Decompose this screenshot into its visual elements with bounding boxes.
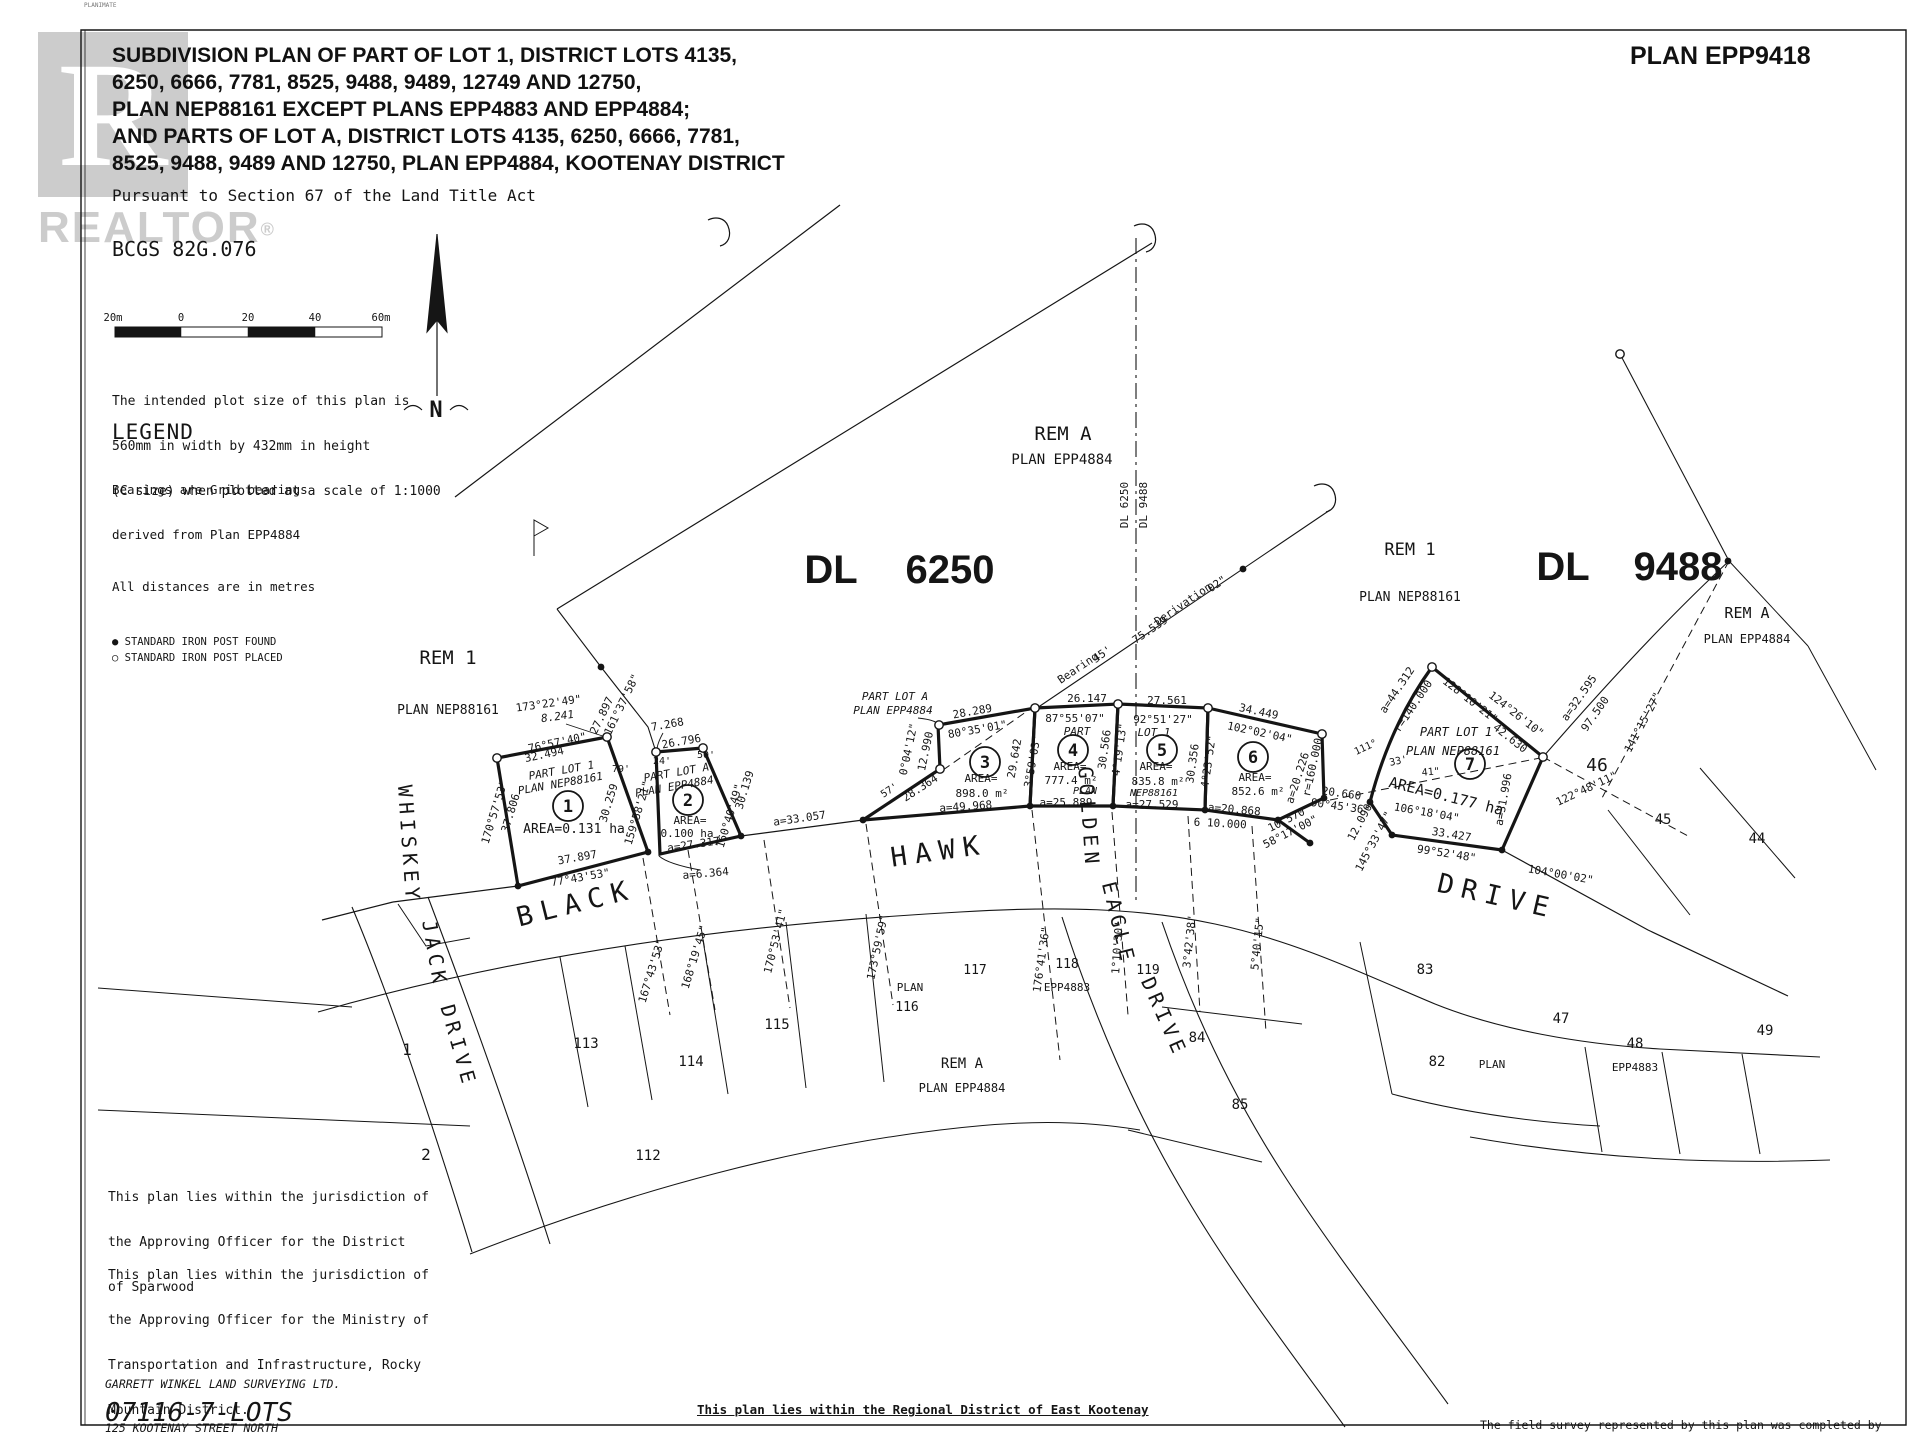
plan-label: PLAN EPP4884 [1704, 632, 1791, 646]
plan-label: 60m [372, 312, 391, 324]
plan-line [1162, 1007, 1302, 1024]
iron-post-found-marker [1499, 847, 1506, 854]
iron-post-found-marker [645, 849, 652, 856]
plan-label: 45 [1655, 812, 1672, 828]
field-survey-line: The field survey represented by this pla… [1480, 1418, 1882, 1432]
plan-label: 46 [1586, 755, 1608, 776]
plan-line [1360, 942, 1392, 1094]
plan-label: Derivation [1152, 580, 1214, 628]
plan-label: PLAN EPP4884 [1011, 452, 1112, 468]
legend-line-1: Bearings are Grid bearings [112, 482, 315, 497]
plan-label: a=27.529 [1126, 798, 1179, 811]
plan-label: 44 [1749, 831, 1766, 847]
plan-label: REM 1 [1384, 540, 1435, 560]
iron-post-placed-marker [652, 748, 660, 756]
plan-label: PLAN NEP88161 [1359, 590, 1461, 605]
plan-line [1585, 1047, 1602, 1152]
iron-post-placed-marker [936, 765, 944, 773]
jurisdiction2-line: This plan lies within the jurisdiction o… [108, 1268, 429, 1283]
iron-post-found-marker [1027, 803, 1034, 810]
plan-label: 83 [1417, 962, 1434, 978]
regional-district-note: This plan lies within the Regional Distr… [697, 1402, 1149, 1417]
plan-label: 37.897 [557, 848, 598, 868]
plan-label: DRIVE [1136, 973, 1193, 1061]
iron-post-placed-marker [1616, 350, 1624, 358]
plan-label: 50' [697, 750, 715, 761]
plan-label: PLAN NEP88161 [1406, 744, 1500, 758]
plan-line [470, 1123, 1140, 1255]
plan-line [1392, 1094, 1600, 1126]
plan-label: WHISKEY [393, 784, 425, 905]
plan-label: 6 10.000 [1193, 816, 1247, 832]
plan-line [248, 327, 315, 337]
title-block: SUBDIVISION PLAN OF PART OF LOT 1, DISTR… [112, 42, 785, 261]
plan-label: 119 [1136, 963, 1159, 978]
plan-label: 118 [1055, 957, 1078, 972]
plan-label: 117 [963, 963, 986, 978]
plan-label: 115 [764, 1017, 789, 1033]
plot-size-line-1: The intended plot size of this plan is [112, 394, 441, 409]
plan-label: 102°02'04" [1226, 719, 1293, 745]
plan-line [1700, 768, 1795, 878]
plan-label: 4°23'52" [1198, 734, 1218, 788]
dashed-boundary-line [1188, 816, 1200, 1012]
title-line-5: 8525, 9488, 9489 AND 12750, PLAN EPP4884… [112, 150, 785, 177]
plan-label: 40 [309, 312, 322, 324]
plan-label: AREA= [1053, 760, 1086, 773]
iron-post-placed-marker [935, 721, 943, 729]
plan-line [115, 327, 181, 337]
plan-label: EPP4883 [1612, 1061, 1658, 1074]
iron-post-found-marker [598, 664, 605, 671]
plan-label: 104°00'02" [1527, 862, 1594, 886]
iron-post-placed-marker [1114, 700, 1122, 708]
plan-line [1808, 646, 1876, 770]
plan-label: 12.990 [915, 730, 936, 772]
plan-label: 82 [1429, 1054, 1446, 1070]
plan-label: 852.6 m² [1232, 785, 1285, 798]
plan-label: DL 9488 [1137, 482, 1150, 528]
plan-label: REM A [1034, 423, 1092, 445]
plan-label: 20m [104, 312, 123, 324]
lot-number-text: 5 [1157, 741, 1167, 761]
plan-label: DL [1536, 545, 1589, 589]
plan-label: PART LOT A [862, 690, 928, 703]
plan-label: 24' [653, 756, 671, 767]
plan-label: DRIVE [435, 1002, 482, 1091]
iron-post-found-marker [1110, 803, 1117, 810]
plan-label: REM A [1724, 604, 1769, 622]
iron-post-found-marker [515, 883, 522, 890]
plan-label: 4°19'13" [1109, 722, 1129, 776]
lot-number-text: 7 [1465, 755, 1475, 775]
plan-label: LOT 1 [1137, 726, 1170, 739]
plan-label: 1 [402, 1040, 412, 1059]
legend: LEGEND Bearings are Grid bearings derive… [112, 420, 315, 664]
lot-number-text: 4 [1068, 741, 1078, 761]
plan-label: EPP4883 [1044, 981, 1090, 994]
plan-label: 112 [635, 1148, 660, 1164]
plan-label: 27.561 [1147, 694, 1187, 707]
title-line-1: SUBDIVISION PLAN OF PART OF LOT 1, DISTR… [112, 42, 785, 69]
bcgs-ref: BCGS 82G.076 [112, 237, 785, 261]
plan-label: 92°51'27" [1133, 713, 1193, 726]
title-line-3: PLAN NEP88161 EXCEPT PLANS EPP4883 AND E… [112, 96, 785, 123]
plan-label: 835.8 m² [1132, 775, 1185, 788]
plan-line [98, 988, 352, 1007]
plan-label: 3°59'03" [1022, 734, 1044, 788]
plan-label: 79' [612, 764, 630, 775]
plan-label: 114 [678, 1054, 703, 1070]
plan-line [786, 922, 806, 1088]
plan-label: 7.268 [650, 715, 685, 734]
dashed-boundary-line [1602, 561, 1729, 798]
plan-label: REM A [941, 1056, 984, 1072]
lot-number-text: 6 [1248, 748, 1258, 768]
plan-label: 167°43'53" [636, 937, 668, 1004]
plan-label: REM 1 [419, 647, 476, 669]
plan-line [1128, 1130, 1262, 1162]
plan-number: PLAN EPP9418 [1630, 42, 1811, 71]
plan-label: AREA= [1139, 760, 1172, 773]
plan-label: 3°42'38" [1180, 915, 1198, 969]
plan-label: 141°15'27" [1622, 690, 1665, 755]
plan-label: AREA= [1238, 771, 1271, 784]
iron-post-found-marker [1307, 840, 1314, 847]
plan-label: 87°55'07" [1045, 712, 1105, 725]
plan-label: PLAN EPP4884 [853, 704, 932, 717]
field-survey-note: The field survey represented by this pla… [1480, 1390, 1882, 1440]
plan-label: 113 [573, 1036, 598, 1052]
plan-label: 41" [1421, 766, 1440, 779]
plan-label: DL [804, 548, 857, 592]
plan-label: PLAN [1479, 1058, 1506, 1071]
survey-plan-page: { "header": { "title_lines": [ "SUBDIVIS… [0, 0, 1920, 1440]
plan-label: DL 6250 [1118, 482, 1131, 528]
plan-label: 20 [242, 312, 255, 324]
plan-label: 116 [895, 1000, 918, 1015]
plan-label: 85 [1232, 1097, 1249, 1113]
job-number: 07116-7-LOTS [105, 1398, 293, 1428]
plan-label: 84 [1189, 1030, 1206, 1046]
plan-line [1662, 1052, 1680, 1154]
plan-label: 5°40'15" [1248, 917, 1266, 971]
jurisdiction1-line: This plan lies within the jurisdiction o… [108, 1190, 429, 1205]
plan-label: 29.642 [1005, 738, 1025, 779]
plan-label: PART [1064, 725, 1092, 738]
iron-post-placed-marker [1204, 704, 1212, 712]
plan-label: AREA= [673, 814, 706, 827]
plan-line [450, 406, 468, 411]
pursuant-note: Pursuant to Section 67 of the Land Title… [112, 186, 785, 205]
plan-label: 0 [178, 312, 184, 324]
iron-post-found-marker [1389, 832, 1396, 839]
legend-item-found: ● STANDARD IRON POST FOUND [112, 636, 315, 648]
plan-line [1062, 917, 1345, 1427]
plan-label: AREA= [964, 772, 997, 785]
iron-post-placed-icon: ○ [112, 652, 118, 664]
plan-line [1162, 922, 1448, 1404]
plan-line [1608, 810, 1690, 915]
lot-number-text: 1 [563, 797, 573, 817]
plan-label: 47 [1553, 1011, 1570, 1027]
iron-post-found-marker [860, 817, 867, 824]
plan-label: AREA=0.131 ha [523, 822, 625, 837]
plan-line [1742, 1054, 1760, 1154]
plan-label: PLAN [897, 981, 924, 994]
lot-number-text: 3 [980, 753, 990, 773]
plan-label: JACK [417, 918, 452, 989]
iron-post-placed-marker [1539, 753, 1547, 761]
legend-line-3: All distances are in metres [112, 579, 315, 594]
plan-line [1314, 484, 1336, 512]
plan-label: a=6.364 [682, 865, 730, 882]
plan-label: a=25.889 [1040, 796, 1093, 809]
jurisdiction2-line: the Approving Officer for the Ministry o… [108, 1313, 429, 1328]
plan-line [98, 1110, 470, 1126]
plan-line [1470, 1137, 1830, 1161]
plan-line [534, 520, 548, 556]
legend-line-2: derived from Plan EPP4884 [112, 527, 315, 542]
legend-lines: Bearings are Grid bearings derived from … [112, 452, 315, 624]
plan-label: 48 [1627, 1036, 1644, 1052]
plan-line [322, 902, 393, 920]
legend-item-placed: ○ STANDARD IRON POST PLACED [112, 652, 315, 664]
plan-label: a=49.968 [939, 798, 993, 815]
plan-label: PLAN EPP4884 [919, 1081, 1006, 1095]
plan-label: a=20.868 [1207, 801, 1261, 819]
plan-label: 49 [1757, 1023, 1774, 1039]
plan-label: HAWK [889, 829, 989, 873]
iron-post-found-marker [1725, 558, 1732, 565]
plan-label: 30.259 [597, 782, 621, 824]
iron-post-placed-marker [1318, 730, 1326, 738]
iron-post-placed-marker [1428, 663, 1436, 671]
iron-post-found-marker [738, 833, 745, 840]
plan-label: PLAN NEP88161 [397, 703, 499, 718]
legend-heading: LEGEND [112, 420, 315, 444]
plan-label: 173°59'59" [864, 914, 890, 981]
plan-label: 6250 [906, 548, 995, 592]
iron-post-found-label: STANDARD IRON POST FOUND [125, 636, 277, 648]
iron-post-placed-marker [493, 754, 501, 762]
plan-line [560, 957, 588, 1107]
title-line-4: AND PARTS OF LOT A, DISTRICT LOTS 4135, … [112, 123, 785, 150]
plan-label: 111° [1353, 738, 1379, 758]
plan-label: 1°10'30" [1109, 921, 1126, 975]
plan-label: 26.147 [1067, 692, 1107, 705]
iron-post-found-icon: ● [112, 636, 118, 648]
plan-label: 170°53'41" [761, 907, 790, 974]
iron-post-placed-marker [1031, 704, 1039, 712]
title-line-2: 6250, 6666, 7781, 8525, 9488, 9489, 1274… [112, 69, 785, 96]
plan-label: 9488 [1634, 545, 1723, 589]
firm-line: GARRETT WINKEL LAND SURVEYING LTD. [105, 1377, 340, 1392]
iron-post-found-marker [1240, 566, 1247, 573]
iron-post-placed-label: STANDARD IRON POST PLACED [125, 652, 283, 664]
plan-label: PART LOT 1 [1420, 725, 1492, 739]
plan-line [1620, 354, 1729, 561]
lot-number-text: 2 [683, 791, 693, 811]
